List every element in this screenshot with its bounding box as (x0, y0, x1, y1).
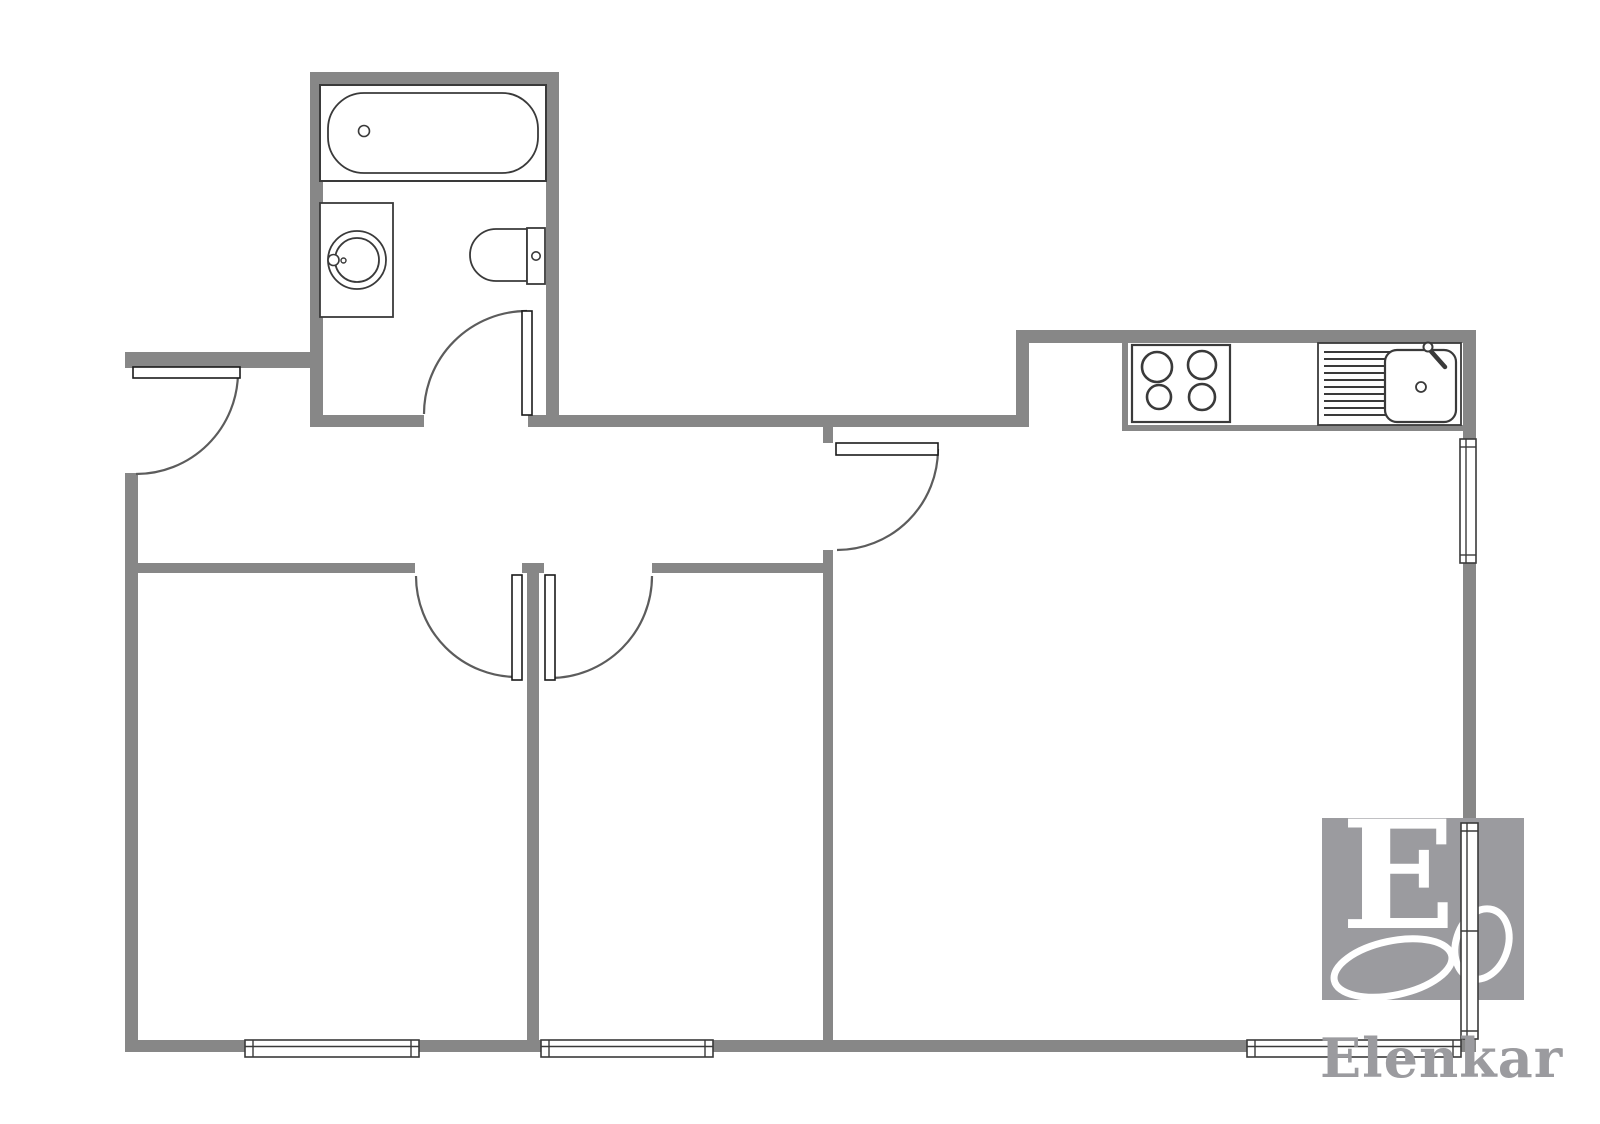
wall-bathroom-top (310, 72, 559, 85)
bathtub-outer (320, 85, 546, 181)
bathroom-door-leaf (522, 311, 532, 415)
wall-hall-bottom-left (125, 563, 415, 573)
living-door-leaf (836, 443, 938, 455)
bedroom1-door-leaf (512, 575, 522, 680)
wall-kitchen-top (1016, 330, 1476, 343)
wall-living-left-stub (823, 427, 833, 443)
window-bedroom2 (541, 1040, 713, 1057)
logo-monogram: E (1341, 801, 1455, 951)
toilet-bowl (470, 229, 527, 281)
wall-central-divider (527, 573, 539, 1052)
entrance-door-arc (136, 373, 238, 474)
bedroom2-door-leaf (545, 575, 555, 680)
wall-living-left (823, 550, 833, 1052)
logo-wordmark: Elenkar (1320, 1031, 1563, 1085)
wall-right-middle (1463, 562, 1476, 823)
entrance-door-leaf (133, 367, 240, 378)
faucet-base (1424, 343, 1433, 352)
window-kitchen-right (1460, 439, 1476, 563)
bedroom1-door-arc (416, 576, 517, 677)
toilet-button (532, 252, 540, 260)
wall-hall-bottom-right (652, 563, 833, 573)
wall-bathroom-right (546, 72, 559, 427)
floorplan: E Elenkar (0, 0, 1600, 1124)
wall-bathroom-bottom (310, 415, 424, 427)
wall-hall-top-right (528, 415, 1016, 427)
washbasin-soapdish (328, 255, 339, 266)
bathroom-door-arc (424, 311, 527, 414)
wall-left-exterior (125, 473, 138, 1052)
window-bedroom1 (245, 1040, 419, 1057)
counter-side-panel (1122, 343, 1128, 431)
wall-hall-bottom-post (522, 563, 544, 573)
living-door-arc (837, 449, 938, 550)
wall-kitchen-left (1016, 330, 1029, 427)
wall-right-upper (1463, 343, 1476, 439)
wall-hall-top-left (125, 352, 323, 368)
sink-basin (1385, 350, 1456, 422)
bathtub-drain (359, 126, 370, 137)
bedroom2-door-arc (550, 576, 652, 678)
